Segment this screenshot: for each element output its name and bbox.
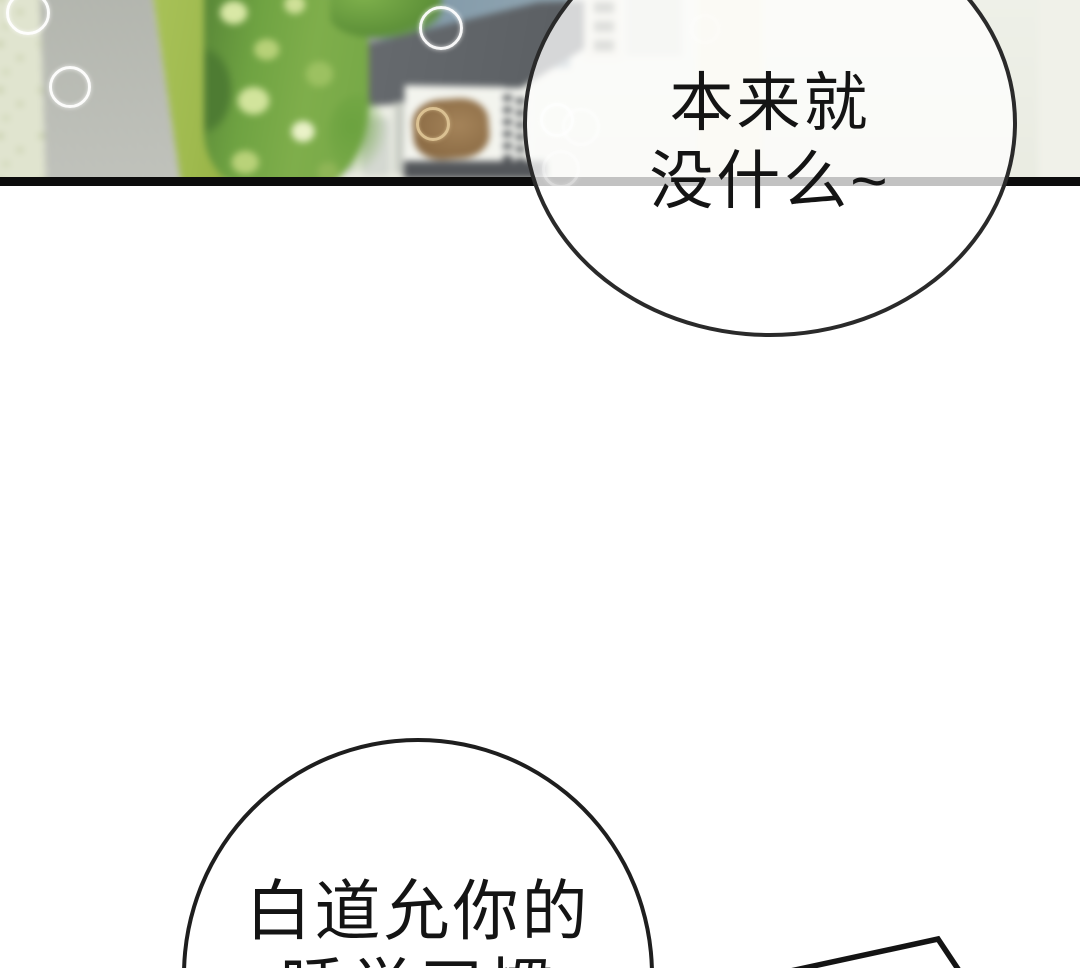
- speech-bubble-top-text: 本来就 没什么~: [527, 64, 1013, 220]
- speech-line: 睡觉习惯: [186, 950, 650, 968]
- lower-roof-band: [404, 161, 546, 177]
- speech-bubble-bottom-text: 白道允你的 睡觉习惯: [186, 872, 650, 968]
- hedge-bump: [328, 95, 386, 173]
- sparkle-ring: [542, 150, 580, 188]
- speech-line: 本来就: [527, 64, 1013, 142]
- speech-line: 没什么~: [527, 142, 1013, 220]
- sparkle-ring: [49, 66, 91, 108]
- sparkle-ring: [690, 14, 720, 44]
- speech-line: 白道允你的: [186, 872, 650, 950]
- sparkle-ring: [562, 108, 600, 146]
- comic-page: 本来就 没什么~ 白道允你的 睡觉习惯: [0, 0, 1080, 968]
- sparkle-ring-beige: [416, 107, 450, 141]
- pale-right-area: [1038, 0, 1080, 177]
- sparkle-ring: [419, 6, 463, 50]
